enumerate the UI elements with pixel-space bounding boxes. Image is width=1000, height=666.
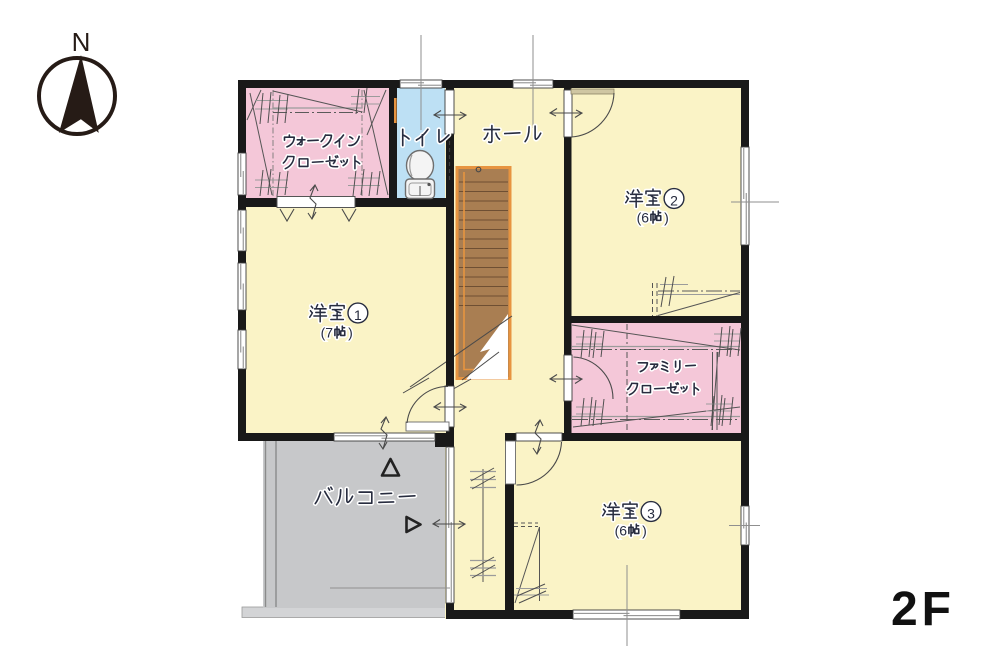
svg-text:2F: 2F [891, 583, 955, 636]
svg-text:(6: (6 [615, 523, 628, 539]
svg-text:1: 1 [354, 307, 362, 323]
svg-text:3: 3 [647, 505, 655, 521]
svg-text:): ) [348, 325, 353, 341]
svg-text:N: N [72, 27, 91, 57]
svg-text:(7: (7 [321, 325, 334, 341]
svg-text:(6: (6 [637, 210, 650, 226]
svg-text:): ) [664, 210, 669, 226]
svg-text:2: 2 [670, 192, 678, 208]
svg-text:): ) [642, 523, 647, 539]
